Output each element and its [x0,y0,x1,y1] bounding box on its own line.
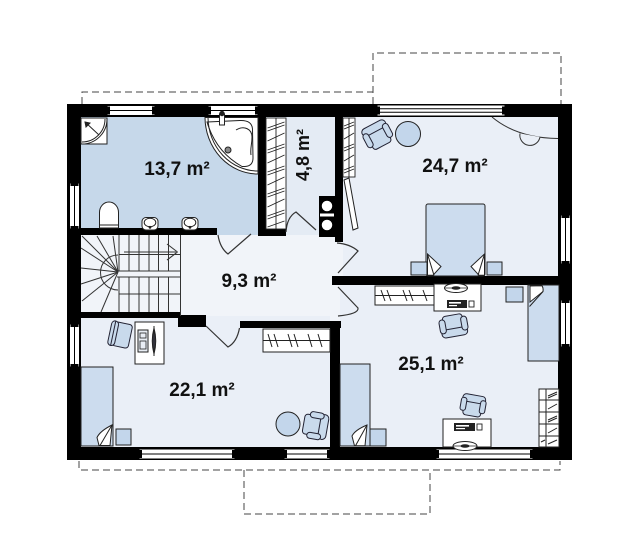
svg-text:22,1 m²: 22,1 m² [169,380,234,401]
svg-text:24,7 m²: 24,7 m² [422,156,487,177]
svg-text:25,1 m²: 25,1 m² [398,354,463,375]
svg-text:9,3 m²: 9,3 m² [222,271,277,292]
svg-text:4,8 m²: 4,8 m² [293,129,313,181]
svg-text:13,7 m²: 13,7 m² [144,159,209,180]
